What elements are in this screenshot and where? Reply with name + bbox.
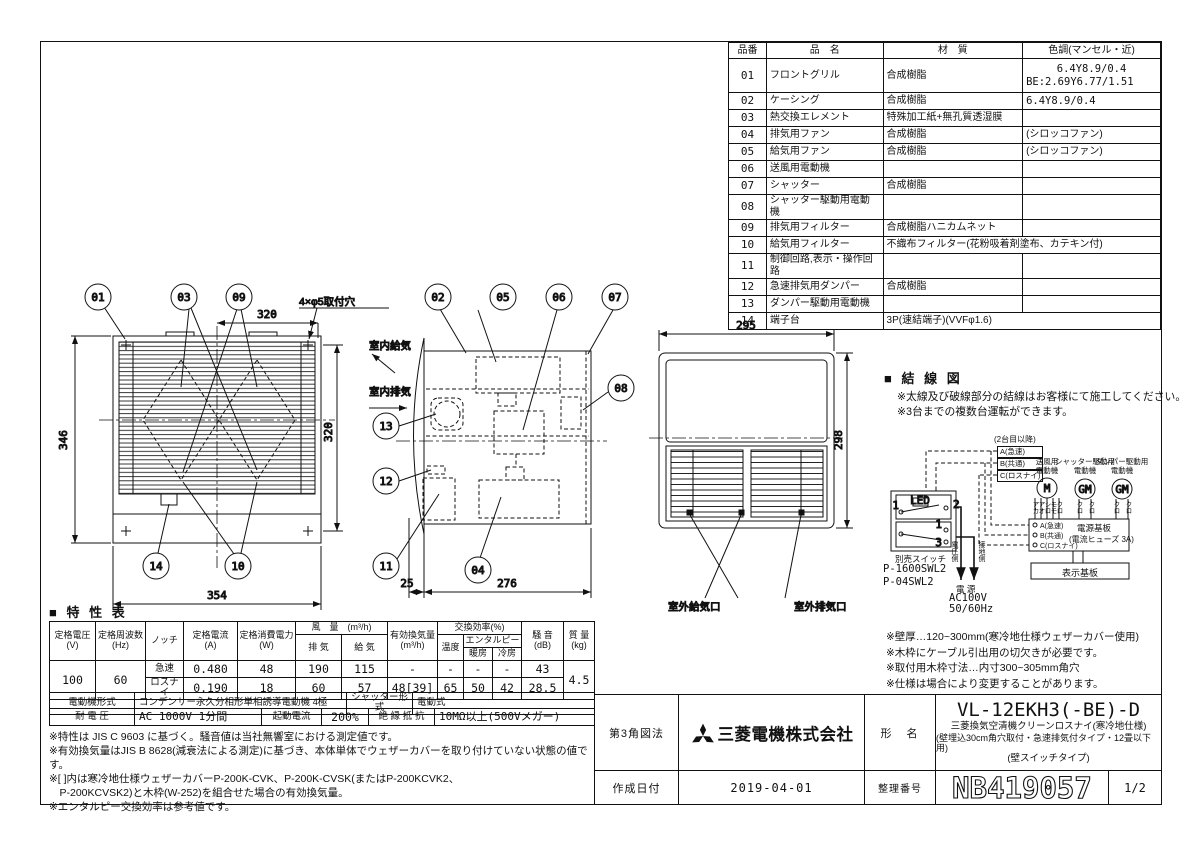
spec-note-4: P-200KCVSK2)と木枠(W-252)を組合せた場合の有効換気量。 [49, 786, 594, 800]
col-part-no: 品番 [729, 43, 767, 59]
table-row: 10 給気用フィルター 不織布フィルター(花粉吸着剤塗布、カテキン付) [729, 237, 1161, 254]
value-cooling: - [493, 661, 522, 678]
part-material: 不織布フィルター(花粉吸着剤塗布、カテキン付) [883, 237, 1160, 254]
outdoor-exhaust-label: 室外排気口 [794, 600, 847, 613]
part-name: 送風用電動機 [766, 161, 883, 178]
table-row: 07 シャッター 合成樹脂 [729, 178, 1161, 195]
number-cell: NB419057 [935, 770, 1108, 804]
part-no: 07 [729, 178, 767, 195]
switch-model-2: P-04SWL2 [883, 576, 934, 588]
callout-04: 04 [471, 564, 485, 577]
dim-front-height: 346 [57, 430, 70, 450]
contact-2: 2 [953, 498, 960, 511]
second-unit-label: (2台目以降) [994, 434, 1036, 445]
table-row: 11 制御回路,表示・操作回路 [729, 254, 1161, 279]
table-row: 14 端子台 3P(速結端子)(VVFφ1.6) [729, 313, 1161, 330]
install-notes: ※壁厚…120~300mm(寒冷地仕様ウェザーカバー使用) ※木枠にケーブル引出… [886, 630, 1158, 692]
col-airflow: 風 量 (m³/h) [296, 622, 388, 635]
callout-07: 07 [608, 291, 621, 304]
part-color: (シロッコファン) [1023, 144, 1161, 161]
part-color-line2: BE:2.69Y6.77/1.51 [1026, 76, 1157, 89]
value-current: 0.480 [184, 661, 238, 678]
wire-color-8: クロ [1112, 501, 1119, 514]
part-name: 給気用ファン [766, 144, 883, 161]
part-name: 排気用ファン [766, 127, 883, 144]
dim-front-width: 354 [207, 589, 227, 602]
spec-note-2: ※有効換気量はJIS B 8628(減衰法による測定)に基づき、本体単体でウェザ… [49, 744, 594, 772]
terminal-block-outline [161, 494, 177, 505]
wiring-note-1: ※太線及び破線部分の結線はお客様にて施工してください。 [897, 388, 1186, 404]
power-board-fuse-label: (電流ヒューズ 3A) [1069, 534, 1134, 545]
supply-fan-outline [476, 357, 560, 393]
install-note-3: ※取付用木枠寸法…内寸300~305mm角穴 [886, 661, 1158, 677]
board-terminal-a: A(急速) [1040, 521, 1063, 531]
table-row: 02 ケーシング 合成樹脂 6.4Y8.9/0.4 [729, 93, 1161, 110]
spec-note-5: ※エンタルピー交換効率は参考値です。 [49, 800, 594, 814]
power-supply-lines [956, 507, 974, 570]
col-exhaust: 排 気 [296, 635, 342, 661]
spec-table: 定格電圧(V) 定格周波数(Hz) ノッチ 定格電流(A) 定格消費電力(W) … [49, 621, 595, 700]
part-name: 制御回路,表示・操作回路 [766, 254, 883, 279]
table-row: 06 送風用電動機 [729, 161, 1161, 178]
part-color: 6.4Y8.9/0.4 BE:2.69Y6.77/1.51 [1023, 59, 1161, 93]
install-note-1: ※壁厚…120~300mm(寒冷地仕様ウェザーカバー使用) [886, 630, 1158, 646]
model-description-1: 三菱換気空清機クリーンロスナイ(寒冷地仕様) [951, 722, 1147, 733]
part-material: 合成樹脂 [883, 93, 1023, 110]
contact-4: 3 [935, 536, 942, 549]
col-effective-ventilation: 有効換気量(m³/h) [388, 622, 438, 661]
col-noise: 騒 音(dB) [522, 622, 564, 661]
model-number: VL-12EKH3(-BE)-D [957, 700, 1140, 722]
part-no: 03 [729, 110, 767, 127]
contact-1: 1 [892, 499, 899, 512]
part-color-line1: 6.4Y8.9/0.4 [1026, 63, 1157, 76]
part-material [883, 254, 1023, 279]
callout-08: 08 [614, 382, 627, 395]
part-no: 06 [729, 161, 767, 178]
table-row: 05 給気用ファン 合成樹脂 (シロッコファン) [729, 144, 1161, 161]
rear-leader-lines [690, 515, 801, 598]
col-enthalpy: エンタルピー [464, 635, 522, 648]
display-board-label: 表示基板 [1031, 566, 1129, 579]
col-supply: 給 気 [342, 635, 388, 661]
col-notch: ノッチ [146, 622, 184, 661]
drawing-sheet-border: .s{stroke:#111;fill:none;stroke-width:1;… [40, 41, 1162, 805]
inrush-value: 200% [322, 709, 369, 726]
date-label: 作成日付 [613, 780, 661, 796]
motor-symbol-m: M [1044, 482, 1051, 495]
value-heating: - [464, 661, 493, 678]
part-no: 14 [729, 313, 767, 330]
power-board-label: 電源基板 [1077, 522, 1111, 534]
motor-outline [494, 411, 544, 454]
part-material: 合成樹脂 [883, 144, 1023, 161]
dim-hole-pitch-h: 320 [257, 308, 277, 321]
part-material: 合成樹脂 [883, 178, 1023, 195]
callout-01: 01 [91, 291, 104, 304]
value-effective: - [388, 661, 438, 678]
damper-motor-label-2: 電動機 [1090, 465, 1154, 476]
side-grille-bulge [414, 338, 425, 534]
table-row: 09 排気用フィルター 合成樹脂ハニカムネット [729, 220, 1161, 237]
col-power-consumption: 定格消費電力(W) [238, 622, 296, 661]
part-material: 特殊加工紙+無孔質透湿膜 [883, 110, 1023, 127]
col-mass: 質 量(kg) [564, 622, 595, 661]
dim-side-depth: 276 [497, 577, 517, 590]
callout-14: 14 [149, 560, 163, 573]
col-cooling: 冷房 [493, 648, 522, 661]
spec-table-title: ■ 特 性 表 [49, 602, 128, 621]
part-material: 合成樹脂 [883, 59, 1023, 93]
model-cell: VL-12EKH3(-BE)-D 三菱換気空清機クリーンロスナイ(寒冷地仕様) … [935, 694, 1161, 770]
value-noise: 43 [522, 661, 564, 678]
front-view: 346 354 320 320 4×φ5取付穴 [57, 295, 389, 610]
part-name: ダンパー駆動用電動機 [766, 296, 883, 313]
ground-side-label: 接地側 [977, 541, 985, 562]
title-block: 第3角図法 三菱電機株式会社 形 名 VL-12EKH3(-BE)-D 三菱換気… [594, 694, 1161, 804]
part-name: 排気用フィルター [766, 220, 883, 237]
spec-header-row-1: 定格電圧(V) 定格周波数(Hz) ノッチ 定格電流(A) 定格消費電力(W) … [50, 622, 595, 635]
wire-color-5: クロ [1055, 501, 1062, 514]
table-row: 13 ダンパー駆動用電動機 [729, 296, 1161, 313]
callout-02: 02 [431, 291, 444, 304]
drawing-sheet-page: .s{stroke:#111;fill:none;stroke-width:1;… [0, 0, 1200, 848]
part-color: 6.4Y8.9/0.4 [1023, 93, 1161, 110]
company-name: 三菱電機株式会社 [718, 721, 854, 745]
parts-header-row: 品番 品 名 材 質 色調(マンセル・近) [729, 43, 1161, 59]
withstand-table: 耐 電 圧 AC 1000V 1分間 起動電流 200% 絶 縁 抵 抗 10M… [49, 708, 595, 726]
date-cell: 2019-04-01 [678, 770, 864, 804]
mitsubishi-logo-icon [690, 721, 716, 745]
part-no: 08 [729, 195, 767, 220]
value-temp: - [438, 661, 464, 678]
callout-09: 09 [232, 291, 245, 304]
outdoor-supply-label: 室外給気口 [668, 600, 721, 613]
col-rated-current: 定格電流(A) [184, 622, 238, 661]
contact-3: 1 [935, 518, 942, 531]
switch-model-1: P-1600SWL2 [883, 563, 946, 575]
spec-row-rapid: 100 60 急速 0.480 48 190 115 - - - - 43 4.… [50, 661, 595, 678]
table-row: 01 フロントグリル 合成樹脂 6.4Y8.9/0.4 BE:2.69Y6.77… [729, 59, 1161, 93]
part-no: 11 [729, 254, 767, 279]
callout-06: 06 [552, 291, 565, 304]
part-name: フロントグリル [766, 59, 883, 93]
part-no: 10 [729, 237, 767, 254]
insulation-value: 10MΩ以上(500Vメガー) [435, 709, 595, 726]
part-material [883, 296, 1023, 313]
notch-rapid: 急速 [146, 661, 184, 678]
col-part-name: 品 名 [766, 43, 883, 59]
table-row: 04 排気用ファン 合成樹脂 (シロッコファン) [729, 127, 1161, 144]
model-label-cell: 形 名 [864, 694, 935, 770]
part-name: ケーシング [766, 93, 883, 110]
mount-holes-label: 4×φ5取付穴 [299, 295, 356, 308]
creation-date: 2019-04-01 [730, 781, 812, 795]
power-frequency-label: 50/60Hz [949, 603, 993, 615]
part-material [883, 195, 1023, 220]
spec-note-1: ※特性は JIS C 9603 に基づく。騒音値は当社無響室における測定値です。 [49, 730, 594, 744]
col-color: 色調(マンセル・近) [1023, 43, 1161, 59]
part-color [1023, 296, 1161, 313]
exhaust-fan-outline [479, 480, 559, 518]
voltage-side-label: 電圧側 [950, 541, 958, 562]
side-leader-lines [397, 309, 613, 559]
part-material: 合成樹脂 [883, 279, 1023, 296]
part-name: 熱交換エレメント [766, 110, 883, 127]
side-view: 25 276 室内給気 室内排気 [369, 309, 613, 598]
part-color [1023, 110, 1161, 127]
part-name: シャッター駆動用電動機 [766, 195, 883, 220]
company-cell: 三菱電機株式会社 [678, 694, 864, 770]
callout-13: 13 [379, 420, 392, 433]
col-heating: 暖房 [464, 648, 493, 661]
col-rated-voltage: 定格電圧(V) [50, 622, 96, 661]
spec-notes: ※特性は JIS C 9603 に基づく。騒音値は当社無響室における測定値です。… [49, 730, 594, 814]
table-row: 耐 電 圧 AC 1000V 1分間 起動電流 200% 絶 縁 抵 抗 10M… [50, 709, 595, 726]
page-cell: 1/2 [1108, 770, 1161, 804]
part-no: 05 [729, 144, 767, 161]
dim-hole-pitch-v: 320 [322, 422, 335, 442]
model-description-3: (壁スイッチタイプ) [1007, 754, 1089, 765]
table-row: 08 シャッター駆動用電動機 [729, 195, 1161, 220]
callout-10: 10 [231, 560, 244, 573]
number-label: 整理番号 [878, 780, 922, 795]
motor-symbol-gm2: GM [1115, 483, 1129, 496]
board-terminal-b: B(共通) [1040, 531, 1063, 541]
withstand-value: AC 1000V 1分間 [135, 709, 262, 726]
part-name: 急速排気用ダンパー [766, 279, 883, 296]
indoor-exhaust-label: 室内排気 [369, 385, 411, 398]
part-color [1023, 178, 1161, 195]
parts-table: 品番 品 名 材 質 色調(マンセル・近) 01 フロントグリル 合成樹脂 6.… [728, 42, 1161, 330]
page-number: 1/2 [1124, 781, 1146, 795]
date-label-cell: 作成日付 [594, 770, 678, 804]
rear-view: 295 298 室外給気口 室外排気口 [649, 319, 853, 613]
part-name: 端子台 [766, 313, 883, 330]
table-row: 03 熱交換エレメント 特殊加工紙+無孔質透湿膜 [729, 110, 1161, 127]
rear-louver-right [751, 450, 823, 517]
col-material: 材 質 [883, 43, 1023, 59]
value-supply: 115 [342, 661, 388, 678]
motor-symbol-gm1: GM [1078, 483, 1092, 496]
projection-method-label: 第3角図法 [609, 725, 664, 741]
led-label: LED [910, 494, 930, 507]
rear-louver-left [671, 450, 743, 517]
col-temperature: 温度 [438, 635, 464, 661]
model-label: 形 名 [881, 725, 920, 741]
indoor-supply-label: 室内給気 [369, 339, 411, 352]
insulation-label: 絶 縁 抵 抗 [369, 709, 435, 726]
wire-color-7: クロ [1087, 501, 1094, 514]
col-exchange-efficiency: 交換効率(%) [438, 622, 522, 635]
inrush-label: 起動電流 [262, 709, 322, 726]
part-name: シャッター [766, 178, 883, 195]
damper-outline [434, 401, 460, 427]
part-color [1023, 220, 1161, 237]
withstand-label: 耐 電 圧 [50, 709, 135, 726]
part-material [883, 161, 1023, 178]
part-no: 01 [729, 59, 767, 93]
callout-12: 12 [379, 475, 392, 488]
part-no: 02 [729, 93, 767, 110]
part-color: (シロッコファン) [1023, 127, 1161, 144]
wire-color-6: クロ [1075, 501, 1082, 514]
install-note-4: ※仕様は場合により変更することがあります。 [886, 677, 1158, 693]
wiring-title: ■ 結 線 図 [884, 368, 963, 387]
part-color [1023, 161, 1161, 178]
part-material: 3P(速結端子)(VVFφ1.6) [883, 313, 1160, 330]
value-exhaust: 190 [296, 661, 342, 678]
part-name: 給気用フィルター [766, 237, 883, 254]
spec-note-3: ※[ ]内は寒冷地仕様ウェザーカバーP-200K-CVK、P-200K-CVSK… [49, 772, 594, 786]
control-circuit-outline [423, 478, 455, 520]
callout-05: 05 [496, 291, 509, 304]
install-note-2: ※木枠にケーブル引出用の切欠きが必要です。 [886, 646, 1158, 662]
projection-method-cell: 第3角図法 [594, 694, 678, 770]
part-no: 12 [729, 279, 767, 296]
dim-side-front: 25 [400, 577, 413, 590]
number-label-cell: 整理番号 [864, 770, 935, 804]
shutter-motor-outline [561, 397, 581, 429]
part-material: 合成樹脂 [883, 127, 1023, 144]
part-color [1023, 254, 1161, 279]
part-color [1023, 195, 1161, 220]
model-description-2: (壁埋込30cm角穴取付・急速排気付タイプ・12畳以下用) [936, 733, 1161, 754]
document-number: NB419057 [952, 771, 1092, 805]
dim-rear-height: 298 [832, 430, 845, 450]
part-no: 04 [729, 127, 767, 144]
col-rated-frequency: 定格周波数(Hz) [96, 622, 146, 661]
part-no: 13 [729, 296, 767, 313]
callout-11: 11 [379, 560, 392, 573]
table-row: 12 急速排気用ダンパー 合成樹脂 [729, 279, 1161, 296]
part-color [1023, 279, 1161, 296]
part-no: 09 [729, 220, 767, 237]
wire-color-9: クロ [1124, 501, 1131, 514]
part-material: 合成樹脂ハニカムネット [883, 220, 1023, 237]
value-power: 48 [238, 661, 296, 678]
callout-03: 03 [177, 291, 190, 304]
wiring-note-2: ※3台までの複数台運転ができます。 [897, 403, 1073, 419]
